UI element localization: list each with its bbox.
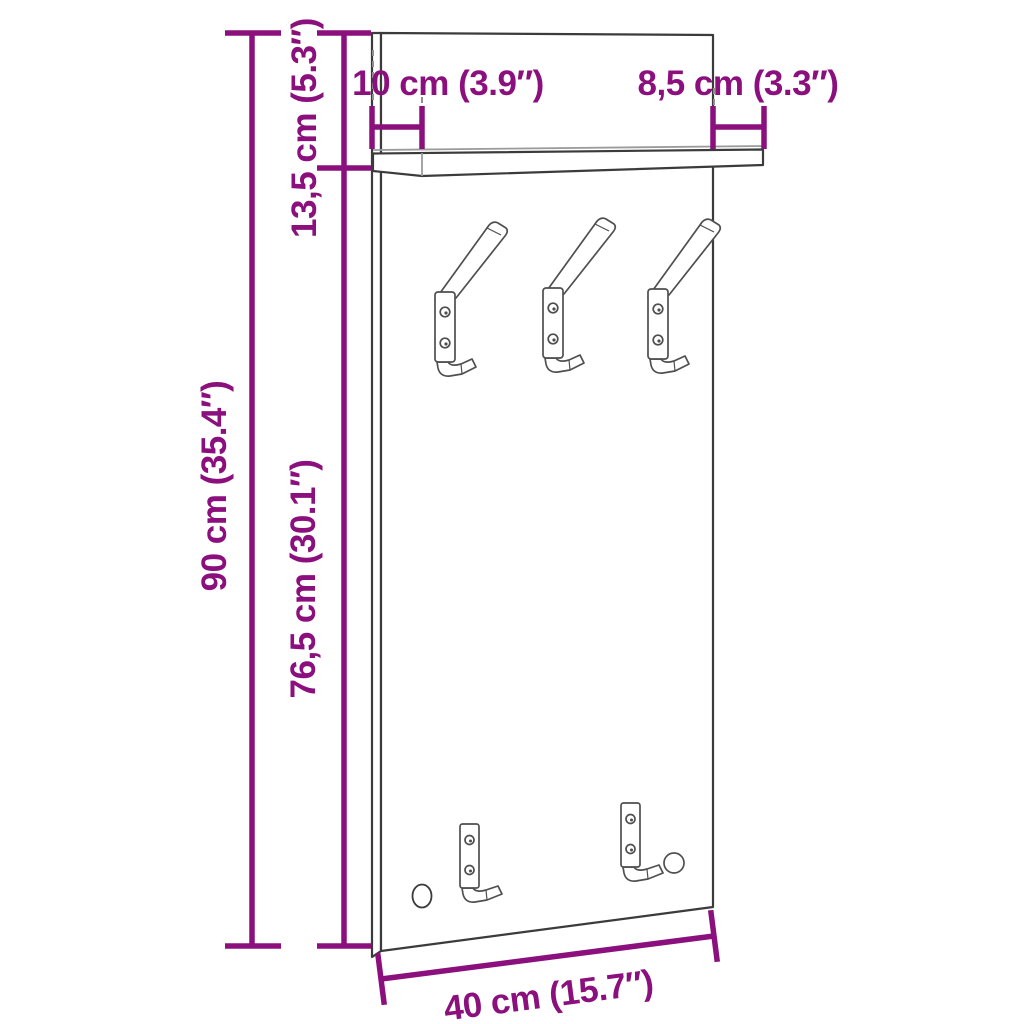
dimension-total-height: 90 cm (35.4″) <box>195 33 281 946</box>
mounting-hole <box>413 885 432 908</box>
dimension-diagram-canvas: 90 cm (35.4″) 13,5 cm (5.3″) 76,5 cm (30… <box>0 0 1024 1024</box>
dimension-upper-height: 13,5 cm (5.3″) 76,5 cm (30.1″) <box>284 18 371 946</box>
label-shelf-depth-left: 10 cm (3.9″) <box>352 64 544 103</box>
coat-rack-dimension-diagram: 90 cm (35.4″) 13,5 cm (5.3″) 76,5 cm (30… <box>0 0 1024 1024</box>
label-shelf-depth-right: 8,5 cm (3.3″) <box>638 64 839 103</box>
label-total-height: 90 cm (35.4″) <box>195 381 234 592</box>
single-hook-2-knob <box>664 853 684 873</box>
label-lower-height: 76,5 cm (30.1″) <box>284 460 323 699</box>
label-width: 40 cm (15.7″) <box>442 963 656 1024</box>
label-upper-height: 13,5 cm (5.3″) <box>285 18 324 238</box>
